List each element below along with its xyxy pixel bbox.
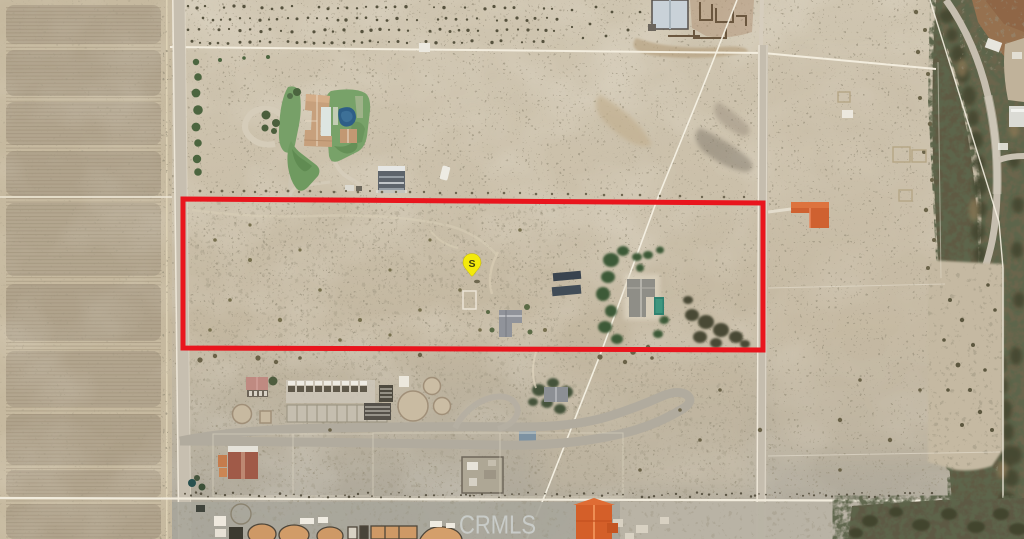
svg-text:CRMLS: CRMLS	[459, 510, 536, 539]
svg-text:S: S	[468, 258, 475, 270]
